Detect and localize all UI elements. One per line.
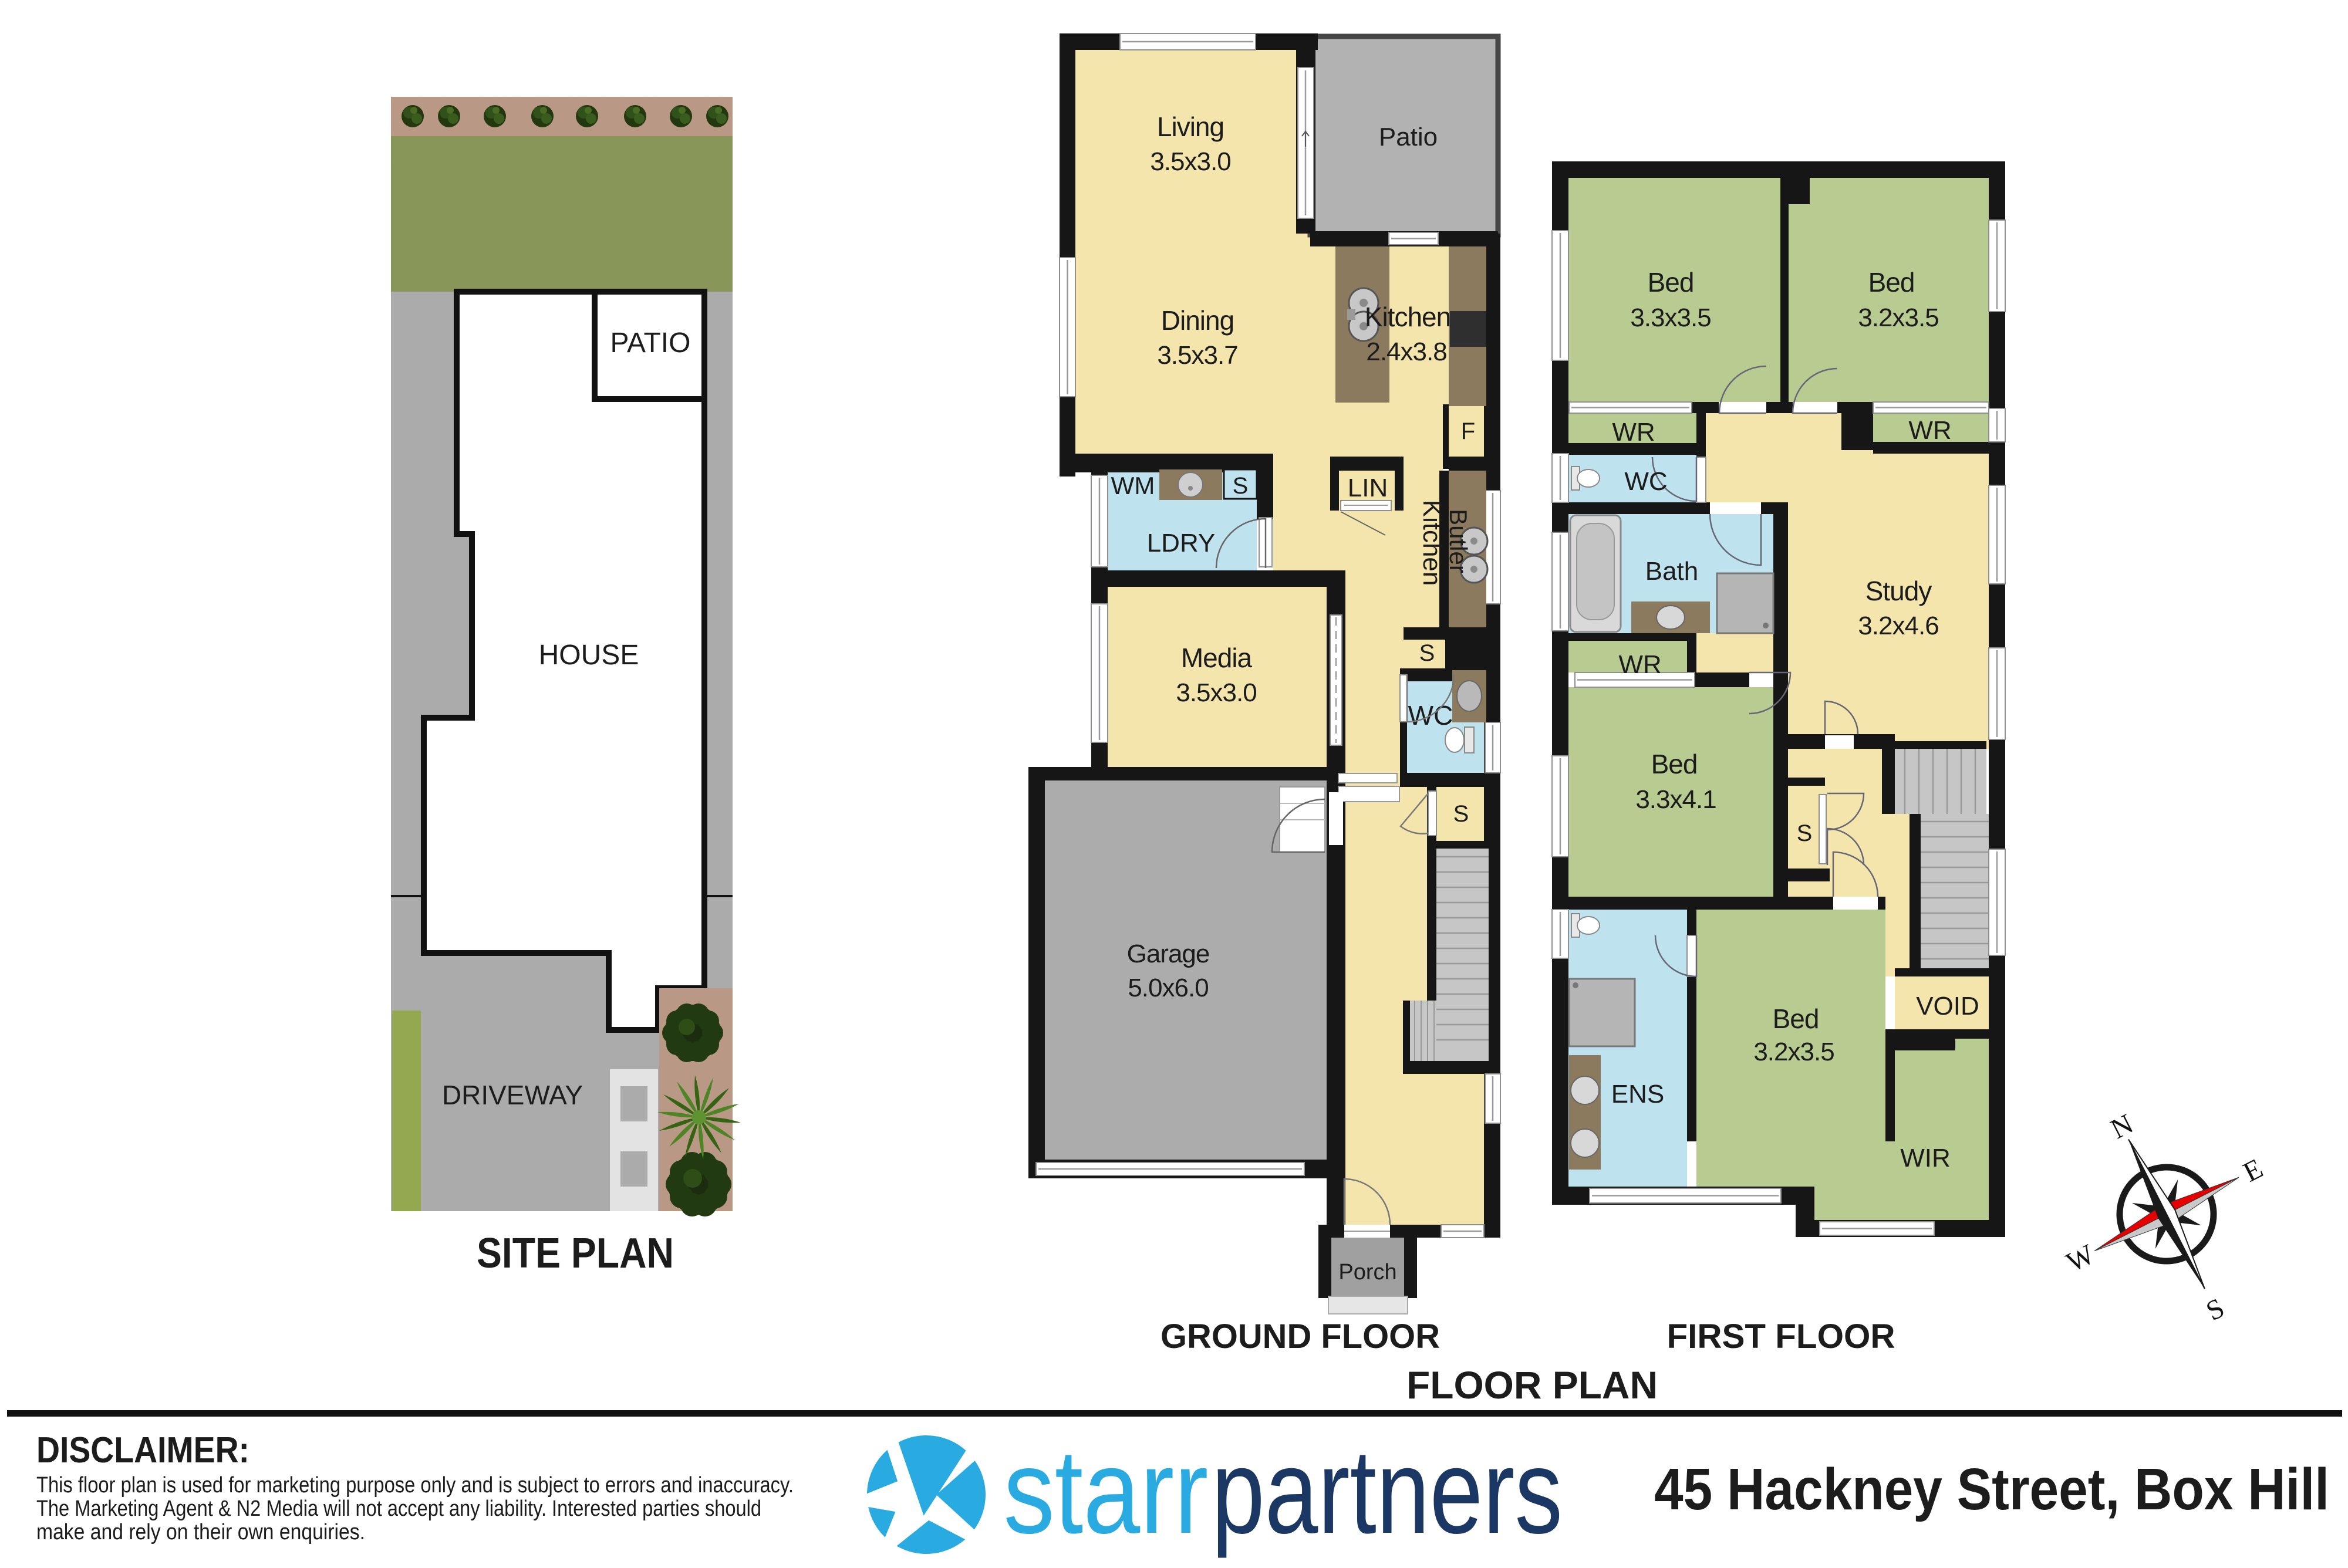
- svg-text:make and rely on their own enq: make and rely on their own enquiries.: [36, 1520, 365, 1545]
- svg-text:WM: WM: [1111, 472, 1155, 499]
- svg-text:Bed: Bed: [1651, 749, 1698, 779]
- svg-text:PATIO: PATIO: [610, 327, 691, 359]
- svg-text:SITE PLAN: SITE PLAN: [477, 1230, 674, 1277]
- svg-text:partners: partners: [1212, 1424, 1563, 1559]
- svg-text:Butler: Butler: [1445, 509, 1472, 573]
- svg-text:DRIVEWAY: DRIVEWAY: [442, 1080, 583, 1110]
- svg-text:3.3x3.5: 3.3x3.5: [1630, 303, 1711, 332]
- svg-text:Kitchen: Kitchen: [1418, 500, 1446, 586]
- svg-text:VOID: VOID: [1916, 992, 1979, 1020]
- svg-text:Bed: Bed: [1648, 267, 1694, 298]
- svg-text:3.5x3.0: 3.5x3.0: [1176, 678, 1256, 707]
- svg-text:Bath: Bath: [1645, 557, 1699, 586]
- svg-text:WR: WR: [1618, 650, 1661, 679]
- svg-text:WR: WR: [1612, 418, 1655, 447]
- svg-text:LIN: LIN: [1348, 474, 1388, 502]
- svg-text:2.4x3.8: 2.4x3.8: [1366, 337, 1446, 366]
- svg-text:S: S: [1453, 801, 1469, 827]
- svg-text:3.5x3.0: 3.5x3.0: [1150, 147, 1230, 176]
- svg-text:S: S: [1419, 640, 1435, 666]
- svg-text:F: F: [1461, 418, 1475, 444]
- svg-text:WIR: WIR: [1900, 1144, 1951, 1172]
- svg-text:HOUSE: HOUSE: [539, 640, 639, 671]
- svg-text:ENS: ENS: [1611, 1080, 1664, 1109]
- svg-text:3.2x4.6: 3.2x4.6: [1858, 611, 1938, 640]
- svg-text:3.2x3.5: 3.2x3.5: [1858, 303, 1938, 332]
- svg-text:WR: WR: [1908, 416, 1951, 445]
- svg-text:starr: starr: [1004, 1424, 1209, 1559]
- svg-text:Bed: Bed: [1773, 1003, 1819, 1034]
- svg-text:S: S: [1797, 820, 1813, 846]
- svg-text:3.5x3.7: 3.5x3.7: [1157, 341, 1237, 370]
- svg-text:DISCLAIMER:: DISCLAIMER:: [36, 1430, 249, 1471]
- svg-text:Patio: Patio: [1379, 123, 1438, 151]
- svg-text:GROUND FLOOR: GROUND FLOOR: [1160, 1317, 1440, 1356]
- svg-text:FLOOR PLAN: FLOOR PLAN: [1406, 1363, 1658, 1407]
- svg-text:Study: Study: [1865, 576, 1932, 606]
- svg-text:Porch: Porch: [1338, 1260, 1396, 1285]
- svg-text:Dining: Dining: [1161, 305, 1234, 336]
- svg-text:5.0x6.0: 5.0x6.0: [1128, 974, 1208, 1002]
- svg-text:3.2x3.5: 3.2x3.5: [1753, 1038, 1834, 1066]
- svg-text:Bed: Bed: [1868, 267, 1915, 298]
- svg-text:WC: WC: [1624, 467, 1667, 496]
- svg-text:S: S: [1233, 473, 1249, 499]
- svg-text:FIRST FLOOR: FIRST FLOOR: [1667, 1317, 1895, 1356]
- svg-text:LDRY: LDRY: [1147, 529, 1216, 557]
- svg-text:3.3x4.1: 3.3x4.1: [1635, 785, 1716, 814]
- svg-text:The Marketing Agent & N2 Media: The Marketing Agent & N2 Media will not …: [36, 1496, 761, 1521]
- svg-text:This floor plan is used for ma: This floor plan is used for marketing pu…: [36, 1473, 794, 1498]
- svg-text:Media: Media: [1181, 643, 1253, 673]
- svg-text:Garage: Garage: [1127, 940, 1210, 968]
- svg-text:Kitchen: Kitchen: [1365, 302, 1450, 332]
- svg-text:45 Hackney Street, Box Hill: 45 Hackney Street, Box Hill: [1654, 1457, 2329, 1522]
- svg-text:Living: Living: [1157, 111, 1224, 142]
